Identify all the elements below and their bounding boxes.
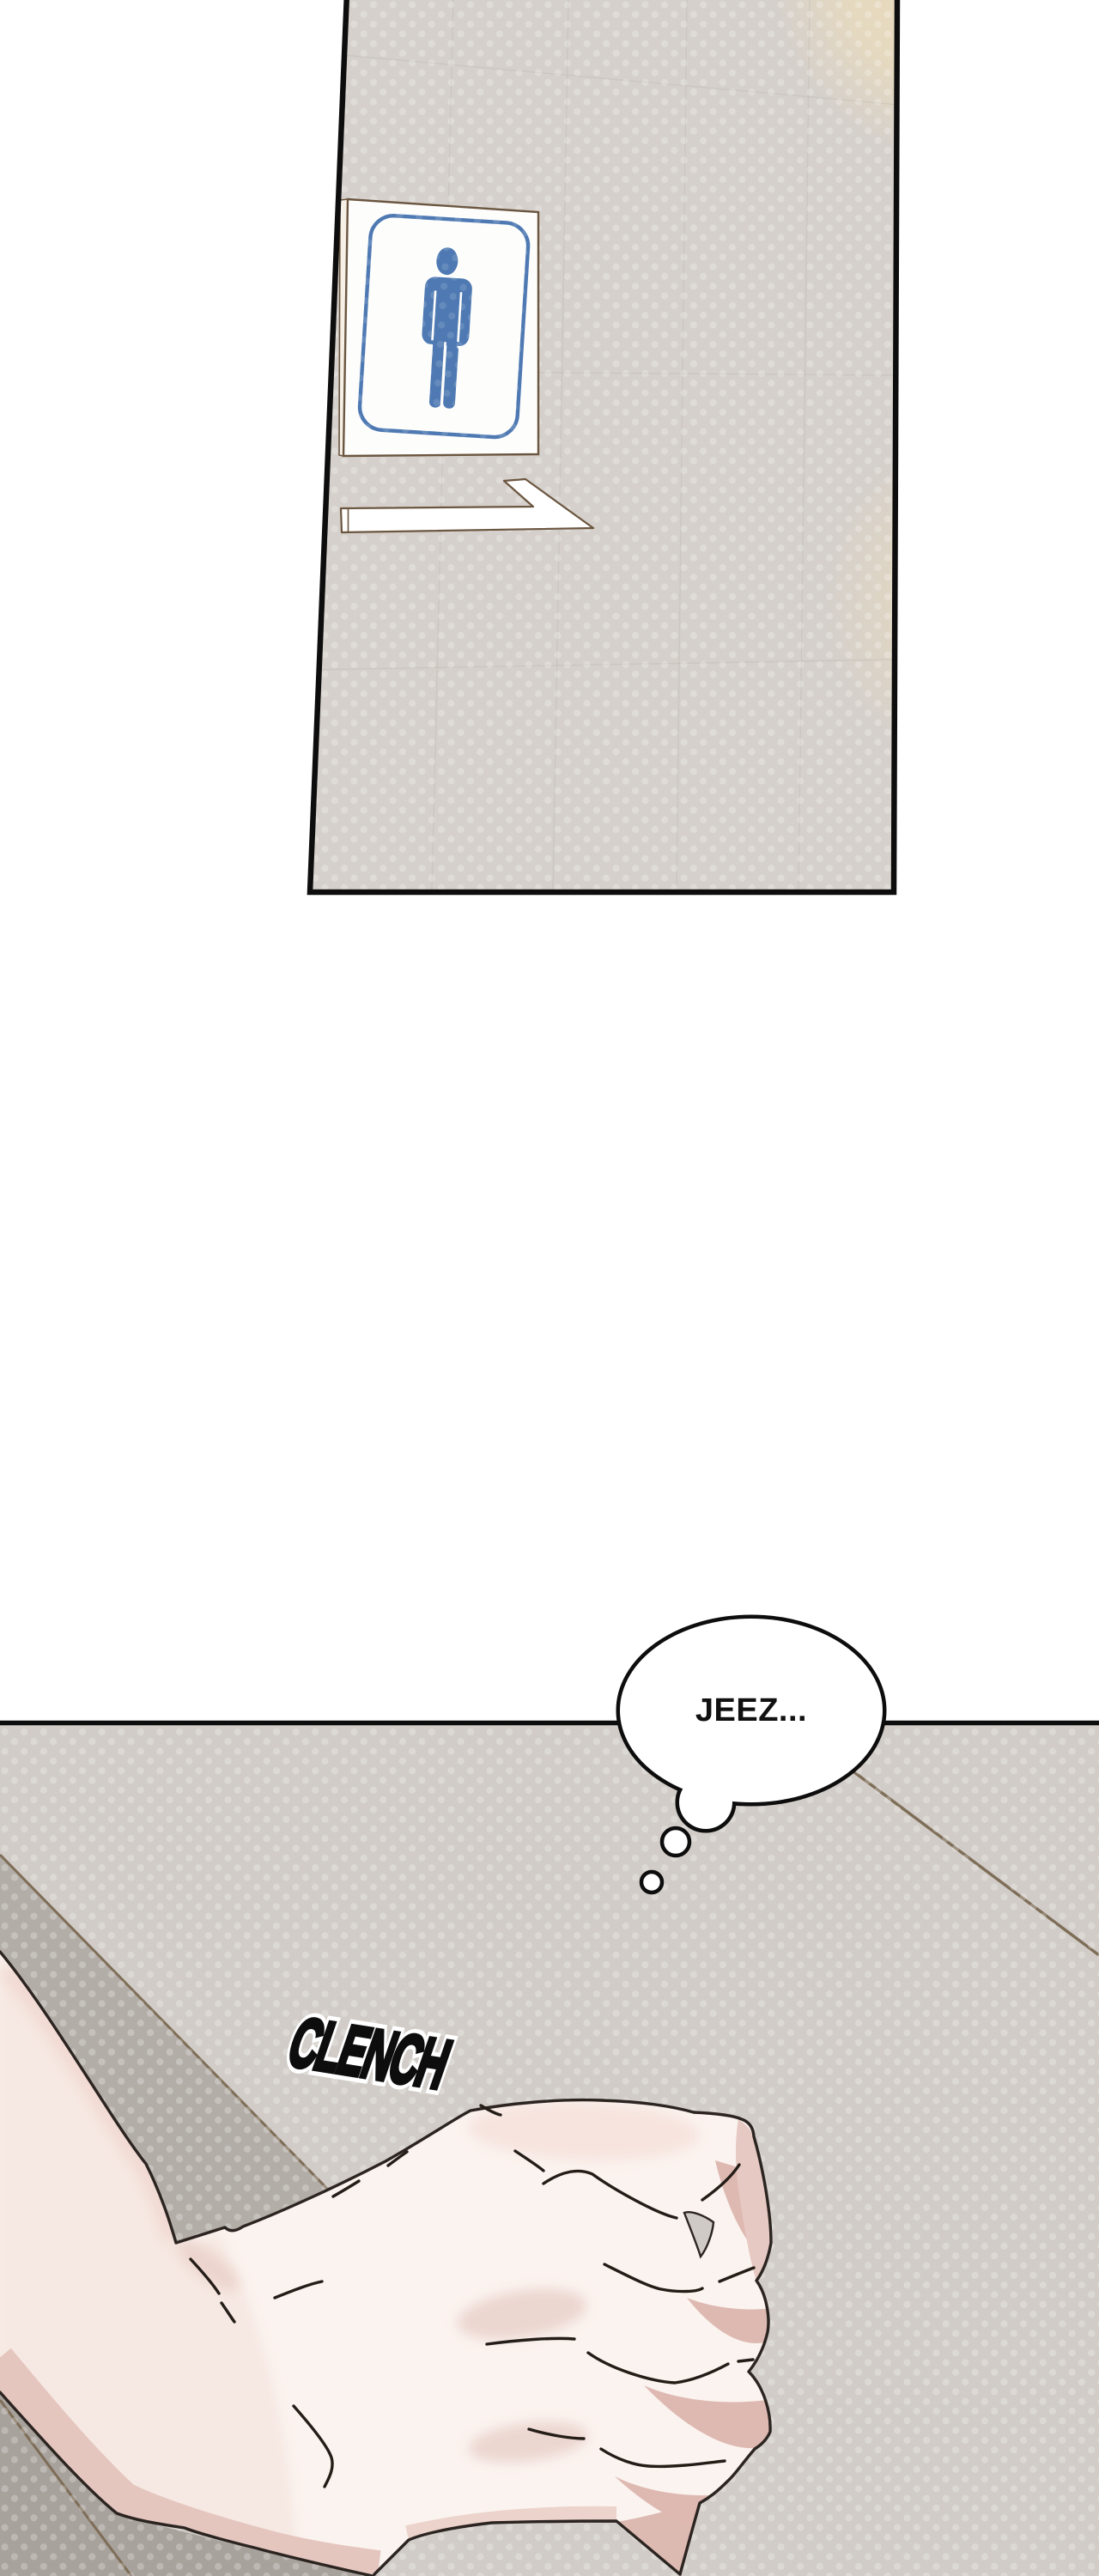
- svg-text:JEEZ...: JEEZ...: [695, 1692, 807, 1728]
